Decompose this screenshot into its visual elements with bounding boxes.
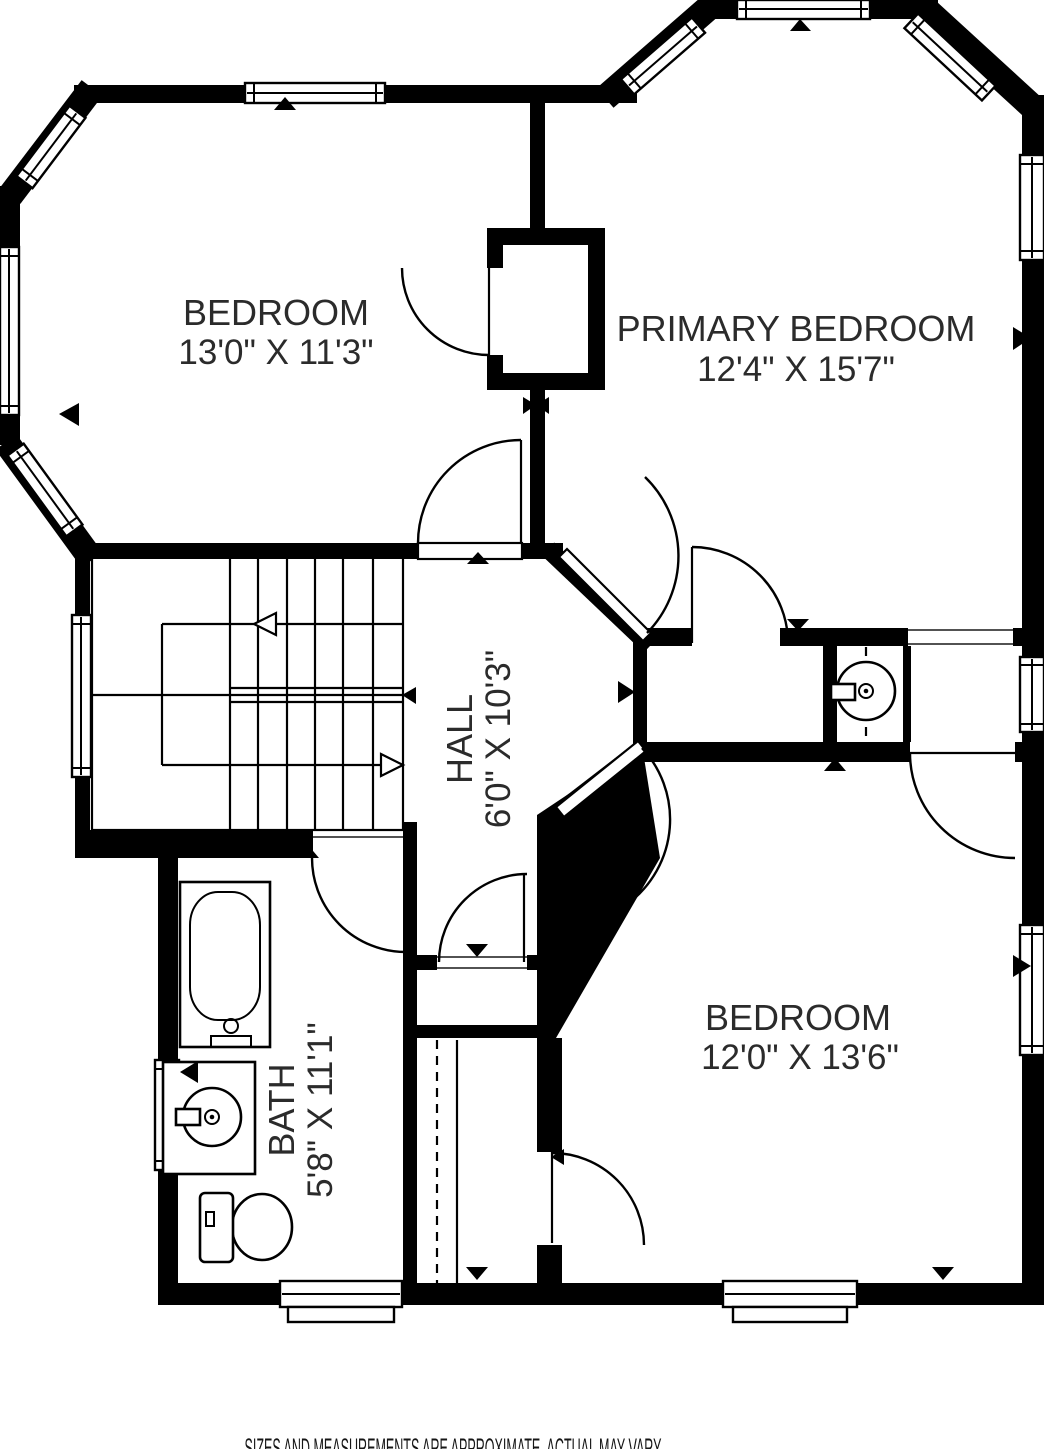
door-swing-arc	[645, 477, 678, 633]
wall-segment	[527, 955, 560, 970]
floor-plan-canvas: BEDROOM 13'0" X 11'3" PRIMARY BEDROOM 12…	[0, 0, 1044, 1449]
window-bay-nw-upper	[17, 106, 86, 188]
wall-segment	[88, 830, 313, 858]
stair-down-arrow	[381, 754, 403, 776]
direction-marker	[59, 403, 79, 426]
door-swing-arc	[910, 753, 1015, 858]
window-top-bedroom1	[245, 83, 385, 103]
door-swing-arc	[692, 547, 788, 643]
sink-drain-dot	[210, 1115, 215, 1120]
staircase	[92, 557, 416, 830]
room-dims-hall: 6'0" X 10'3"	[479, 650, 518, 828]
wall-segment	[537, 1038, 562, 1152]
window-bottom-bath	[280, 1281, 402, 1322]
wall-segment	[704, 0, 737, 19]
room-dims-primary-bedroom: 12'4" X 15'7"	[697, 350, 895, 389]
door-primary-bedroom	[559, 477, 678, 641]
toilet-bowl	[232, 1194, 292, 1260]
room-label-bath: BATH	[261, 1063, 302, 1156]
direction-marker	[618, 681, 635, 703]
wall-segment	[780, 628, 908, 646]
wall-segment	[1013, 628, 1022, 646]
wall-segment	[417, 1025, 537, 1038]
stair-outline	[92, 557, 403, 830]
door-opening	[313, 830, 403, 858]
direction-marker	[790, 19, 811, 31]
door-bath	[312, 830, 406, 952]
door-opening	[485, 268, 503, 355]
window-right-nook	[1020, 657, 1044, 732]
sink-faucet-icon	[176, 1109, 200, 1125]
door-leaf	[559, 549, 651, 641]
door-opening	[537, 1152, 562, 1245]
window-bay-sw-lower	[8, 444, 83, 537]
wall-segment	[633, 742, 910, 762]
direction-marker	[466, 1267, 488, 1280]
lower-closet-rod	[437, 1040, 457, 1283]
bath-vanity-sink	[163, 1062, 255, 1174]
bathtub	[180, 882, 270, 1047]
room-dims-bedroom1: 13'0" X 11'3"	[178, 333, 373, 372]
wall-segment	[1015, 742, 1044, 762]
wall-segment	[537, 1245, 562, 1283]
sink-drain-dot	[864, 689, 869, 694]
window-bottom-bedroom2	[723, 1281, 857, 1322]
wall-segment	[530, 103, 545, 228]
floor-plan: BEDROOM 13'0" X 11'3" PRIMARY BEDROOM 12…	[0, 0, 1044, 1449]
window-left-bay	[0, 247, 19, 415]
toilet	[200, 1193, 292, 1262]
room-label-primary-bedroom: PRIMARY BEDROOM	[617, 308, 976, 349]
cased-opening-nook	[908, 628, 1013, 646]
door-walkin-closet	[692, 547, 788, 645]
window-right-bedroom2	[1020, 925, 1044, 1055]
door-swing-arc	[418, 440, 521, 543]
door-bedroom1	[418, 440, 522, 559]
room-dims-bedroom2: 12'0" X 13'6"	[701, 1038, 899, 1077]
wall-segment	[403, 955, 437, 970]
window-left-stairs	[72, 615, 91, 777]
closet-interior	[503, 245, 588, 373]
windows	[0, 0, 1044, 1322]
window-right-primary	[1020, 155, 1044, 260]
room-dims-bath: 5'8" X 11'1"	[301, 1022, 340, 1198]
wall-segment	[633, 642, 647, 748]
toilet-tank	[200, 1193, 233, 1262]
window-top-primary	[737, 0, 870, 19]
sink-faucet-icon	[831, 684, 855, 700]
door-swing-arc	[312, 858, 406, 952]
wall-segment	[530, 390, 545, 545]
room-label-bedroom1: BEDROOM	[183, 292, 369, 333]
door-nook-bedroom2	[910, 742, 1015, 858]
door-opening	[418, 543, 522, 559]
direction-marker	[932, 1267, 954, 1280]
door-swing-arc	[552, 1153, 644, 1245]
disclaimer-text: SIZES AND MEASUREMENTS ARE APPROXIMATE, …	[245, 1433, 662, 1449]
room-label-hall: HALL	[439, 694, 480, 784]
door-vestibule	[437, 874, 527, 970]
door-top-closet	[402, 268, 503, 355]
door-lower-closet	[537, 1152, 644, 1245]
room-label-bedroom2: BEDROOM	[705, 997, 891, 1038]
door-swing-arc	[402, 268, 489, 355]
closet-sink	[831, 647, 895, 740]
door-opening	[692, 629, 780, 645]
wall-segment	[903, 642, 911, 748]
